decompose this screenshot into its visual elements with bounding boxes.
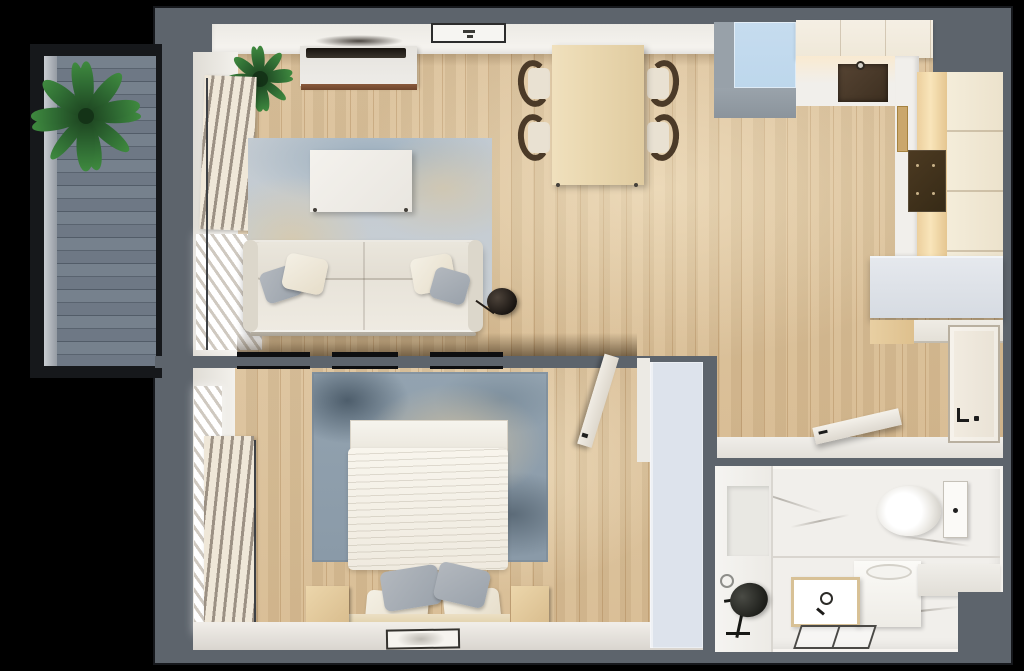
door-handle-icon: [957, 408, 969, 422]
vanity-faucet-icon: [820, 592, 833, 605]
sofa-seam: [363, 242, 365, 330]
partition-track: [430, 352, 503, 357]
toilet-cistern: [943, 481, 968, 538]
door-handle-icon: [581, 433, 588, 439]
partition-track: [332, 352, 398, 357]
kitchen-sink: [838, 64, 888, 102]
tv: [306, 48, 406, 58]
partition-track: [332, 366, 398, 369]
bedroom-window-blinds: [204, 436, 254, 626]
upper-cabinets: [796, 20, 933, 58]
nightstand-left: [306, 586, 349, 624]
curtain-rod: [206, 78, 208, 350]
partition-track: [430, 366, 503, 369]
dining-chair: [518, 60, 556, 107]
picture-sketch: [396, 633, 446, 646]
table-foot: [556, 183, 560, 187]
curtain-rod: [254, 440, 256, 625]
cabinet-side-panel: [714, 88, 796, 118]
washer-lid: [866, 564, 912, 580]
wardrobe: [650, 362, 703, 648]
dining-chair: [641, 114, 679, 161]
shower-niche: [727, 486, 769, 556]
plant-center: [78, 108, 94, 124]
bathroom-wall-notch: [958, 592, 1011, 652]
table-foot: [404, 208, 408, 212]
door-handle-icon: [818, 430, 827, 435]
kitchen-corner-wall: [933, 8, 1011, 74]
drain-line: [832, 627, 840, 647]
vanity-tap-icon: [816, 607, 825, 615]
sink-faucet: [856, 61, 865, 70]
tv-console-trim: [301, 84, 417, 90]
sofa-armrest: [243, 240, 258, 332]
table-foot: [634, 183, 638, 187]
blue-cabinet: [734, 22, 796, 88]
washing-machine: [854, 561, 921, 627]
partition-track: [237, 352, 310, 357]
bed-duvet: [348, 448, 508, 570]
cooktop: [908, 150, 946, 212]
toilet: [877, 486, 941, 536]
floor-picture-frame: [386, 628, 460, 649]
door-lock-icon: [974, 416, 979, 421]
dining-table: [552, 45, 644, 185]
cabinet-handle-panel: [897, 106, 908, 152]
flush-button-icon: [953, 508, 958, 513]
floor-drain: [793, 625, 877, 649]
dining-chair: [641, 60, 679, 107]
coffee-table: [310, 150, 412, 212]
tall-cabinet-front: [947, 72, 1003, 257]
fan-stand: [726, 632, 750, 635]
kitchen-island: [870, 256, 1003, 318]
entrance-door: [948, 325, 1000, 443]
floor-plan-canvas: [0, 0, 1024, 671]
table-foot: [313, 208, 317, 212]
fan-ring: [720, 574, 734, 588]
dining-chair: [518, 114, 556, 161]
island-base-cabinet: [870, 320, 914, 344]
bedroom-door-frame: [637, 358, 650, 462]
sofa-armrest: [468, 240, 483, 332]
decor-sphere: [487, 288, 517, 315]
partition-track: [237, 366, 310, 369]
ceiling-light: [431, 23, 506, 43]
balcony-plant: [30, 60, 142, 172]
sink-vanity: [791, 577, 860, 627]
nightstand-right: [511, 586, 549, 624]
